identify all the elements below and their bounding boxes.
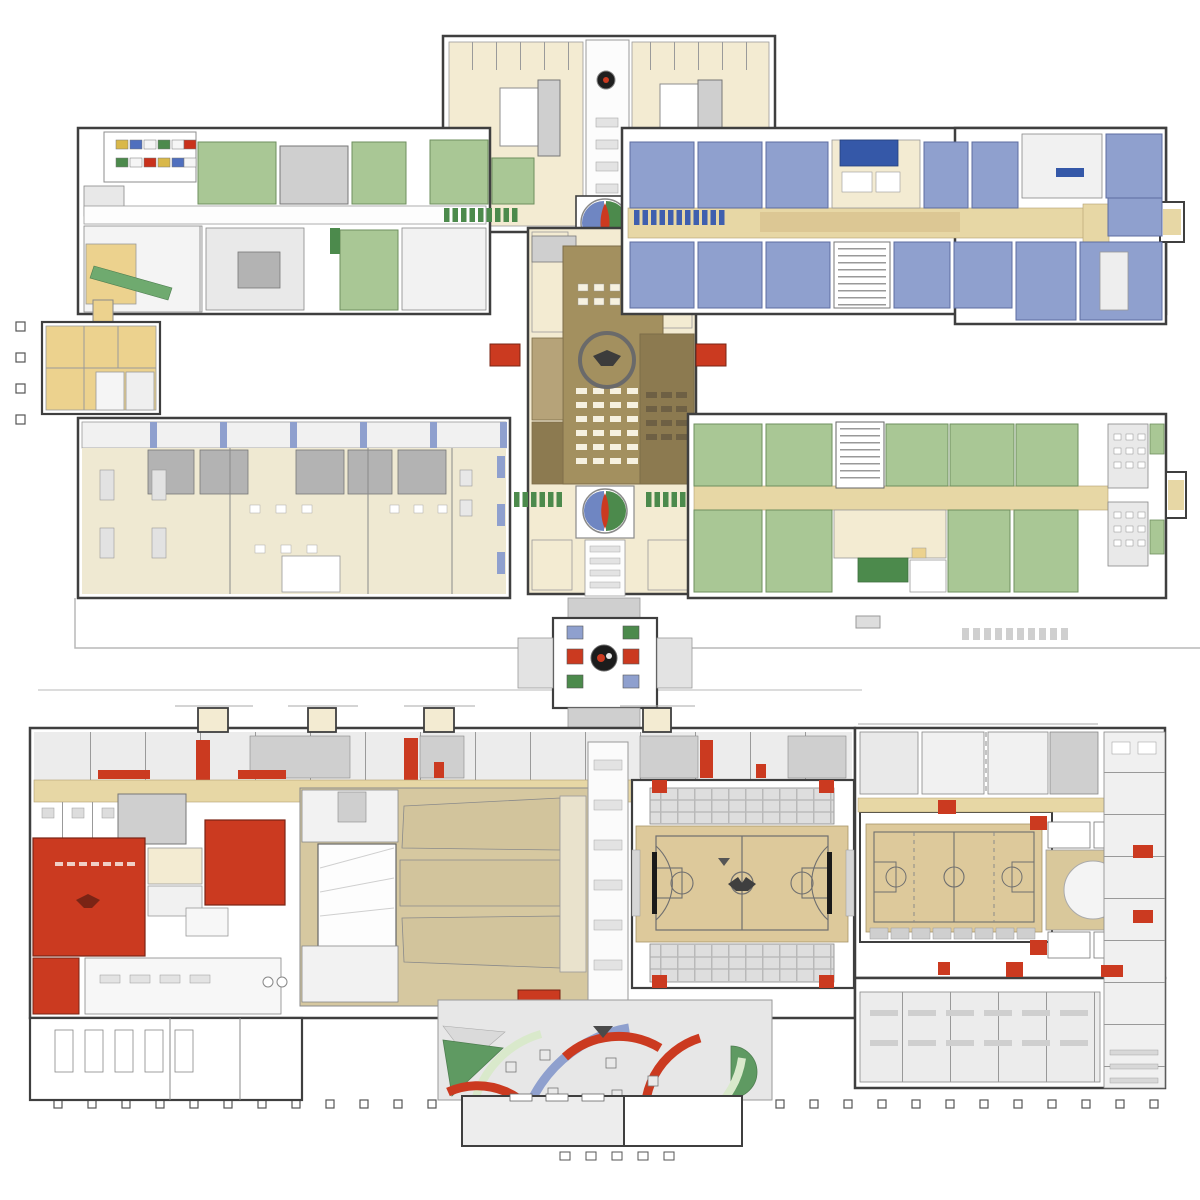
mr-lab-top xyxy=(1108,424,1148,488)
table-6 xyxy=(184,140,196,149)
site-equipment xyxy=(856,616,880,628)
ul-green-5 xyxy=(340,230,398,310)
entry-vestibule-2 xyxy=(308,708,336,732)
red-room-2 xyxy=(205,820,285,905)
ur-blue-t1 xyxy=(630,142,694,208)
ur-blue-t2 xyxy=(698,142,762,208)
mr-yellow-sm xyxy=(912,548,926,558)
entry-vestibule-3 xyxy=(424,708,454,732)
lb-red-5 xyxy=(434,762,444,778)
ur-corridor-band xyxy=(760,212,960,232)
connector-sq-red-e xyxy=(623,649,639,664)
table-4 xyxy=(158,140,170,149)
lb-red-3 xyxy=(196,740,210,780)
ur-util-white xyxy=(1100,252,1128,310)
court-baseline-w xyxy=(652,852,657,914)
gray-room-serving xyxy=(118,794,186,844)
mr-green-t4 xyxy=(950,424,1014,486)
shop-benches-2 xyxy=(255,545,317,553)
site-dots-bottom-left xyxy=(54,1100,436,1108)
table-9 xyxy=(144,158,156,167)
rb-red-7 xyxy=(1006,962,1023,977)
gym-pad-w xyxy=(632,850,640,916)
gym-red-se xyxy=(819,975,834,988)
media-shelves-2 xyxy=(646,406,687,412)
rb-red-4 xyxy=(1133,910,1153,923)
rb-benches xyxy=(1110,1050,1158,1083)
stage-support-gray xyxy=(338,792,366,822)
media-shelves-3 xyxy=(646,420,687,426)
mr-green-b2 xyxy=(766,510,832,592)
seating-rear-walk xyxy=(560,796,586,972)
mr-green-b1 xyxy=(694,510,762,592)
plaza-planter-1 xyxy=(506,1062,516,1072)
ur-blue-t3 xyxy=(766,142,828,208)
mr-green-t1 xyxy=(694,424,762,486)
rb-room-3 xyxy=(988,732,1048,794)
stair-medallion-dot xyxy=(603,77,609,83)
connector-sq-blue-nw xyxy=(567,626,583,639)
rb-red-2 xyxy=(1030,816,1047,830)
seating-c xyxy=(402,916,560,968)
mr-lab-top-r1 xyxy=(1114,434,1145,440)
site-dots-bottom-right xyxy=(776,1100,1158,1108)
connector-pad-n xyxy=(568,598,640,618)
media-stair-east xyxy=(696,344,726,366)
rb-corridor xyxy=(858,798,1108,812)
entry-vestibule-1 xyxy=(198,708,228,732)
mr-green-t5 xyxy=(1016,424,1078,486)
mr-green-t2 xyxy=(766,424,832,486)
table-2 xyxy=(130,140,142,149)
rb-red-6 xyxy=(938,962,950,975)
table-5 xyxy=(172,140,184,149)
shop-benches-3 xyxy=(390,505,447,513)
connector-sq-green-sw xyxy=(567,675,583,688)
annex-room-w2 xyxy=(126,372,154,410)
stage-side-rooms xyxy=(302,946,398,1002)
ur-endcap-darkblue xyxy=(1056,168,1084,177)
mr-green-e2 xyxy=(1150,520,1164,554)
plaza-vestibule-e xyxy=(624,1096,742,1146)
gym-red-ne xyxy=(819,780,834,793)
ul-lockers-green xyxy=(444,208,518,222)
kindergarten-room xyxy=(104,132,196,182)
ur-vestibule-east-floor xyxy=(1163,209,1181,235)
stage xyxy=(318,844,396,962)
shops-gray-4 xyxy=(348,450,392,494)
floor-plan-page xyxy=(0,0,1200,1200)
mr-green-e1 xyxy=(1150,424,1164,454)
rb-red-5 xyxy=(1030,940,1047,955)
connector-pad-s xyxy=(568,708,640,728)
lb-red-6 xyxy=(700,740,713,778)
mr-green-t3 xyxy=(886,424,948,486)
ur-blue-t6 xyxy=(1106,134,1162,198)
table-10 xyxy=(158,158,170,167)
rb-red-1 xyxy=(938,800,956,814)
connector-sq-green-ne xyxy=(623,626,639,639)
media-left-room2 xyxy=(532,422,563,484)
shops-white-room xyxy=(282,556,340,592)
shop-benches-1 xyxy=(250,505,312,513)
gym-pad-e xyxy=(846,850,854,916)
connector-pad-e xyxy=(657,638,692,688)
media-shelves-4 xyxy=(646,434,687,440)
shops-blue-edge xyxy=(497,456,505,574)
lb-gray-3 xyxy=(640,736,698,778)
shops-gray-3 xyxy=(296,450,344,494)
ur-core-cell2 xyxy=(876,172,900,192)
mr-util-cream xyxy=(834,510,946,558)
plaza-planter-2 xyxy=(540,1050,550,1060)
ur-blue-b6 xyxy=(1016,242,1076,320)
red-room-counter xyxy=(55,862,135,866)
media-left-room1 xyxy=(532,338,563,420)
mr-green-b3 xyxy=(948,510,1010,592)
mr-lab-bottom xyxy=(1108,502,1148,566)
seating-a xyxy=(402,798,560,850)
media-shelves-1 xyxy=(646,392,687,398)
ur-lockers-blue xyxy=(634,210,725,225)
school-campus-floor-plan xyxy=(0,0,1200,1200)
connector-medallion-white xyxy=(606,653,612,659)
locker-suite xyxy=(860,992,1100,1082)
mat-room-3 xyxy=(1048,932,1090,958)
rb-room-2 xyxy=(922,732,984,794)
serving-circle-1 xyxy=(263,977,273,987)
table-8 xyxy=(130,158,142,167)
rb-red-8 xyxy=(1101,965,1123,977)
lb-red-2 xyxy=(238,770,286,779)
table-1 xyxy=(116,140,128,149)
ur-endcap-white xyxy=(1022,134,1102,198)
ur-blue-b5 xyxy=(954,242,1012,308)
left-link xyxy=(93,300,113,324)
shops-gray-5 xyxy=(398,450,446,494)
mat-room-1 xyxy=(1048,822,1090,848)
ul-green-2 xyxy=(352,142,406,204)
north-room-2 xyxy=(538,80,560,156)
mr-lab-top-r2 xyxy=(1114,448,1145,454)
mr-lab-top-r3 xyxy=(1114,462,1145,468)
lb-red-1 xyxy=(98,770,150,779)
ul-greendark-1 xyxy=(330,228,340,254)
mr-corridor xyxy=(694,486,1108,510)
plaza-planter-4 xyxy=(606,1058,616,1068)
media-south-room-e xyxy=(648,540,692,590)
lb-red-7 xyxy=(756,764,766,778)
lb-red-4 xyxy=(404,738,418,780)
lb-cream-1 xyxy=(148,848,202,884)
plaza-doors xyxy=(510,1094,604,1101)
ur-blue-b1 xyxy=(630,242,694,308)
red-room-3 xyxy=(33,958,79,1014)
mr-lab-bot-r2 xyxy=(1114,526,1145,532)
shops-gray-2 xyxy=(200,450,248,494)
seating-b xyxy=(400,860,560,906)
plaza-vestibule xyxy=(462,1096,624,1146)
lb-gray-4 xyxy=(788,736,846,778)
connector-sq-blue-se xyxy=(623,675,639,688)
ur-blue-t5 xyxy=(972,142,1018,208)
mr-white-room xyxy=(910,560,946,592)
table-11 xyxy=(172,158,184,167)
gym-red-sw xyxy=(652,975,667,988)
ul-gray-1 xyxy=(280,146,348,204)
plaza-south-ticks xyxy=(560,1152,674,1160)
entry-vestibule-4 xyxy=(643,708,671,732)
ur-core-cell1 xyxy=(842,172,872,192)
rb-red-3 xyxy=(1133,845,1153,858)
media-stair-west xyxy=(490,344,520,366)
ul-green-4 xyxy=(492,158,534,204)
rb-room-1 xyxy=(860,732,918,794)
annex-room-w1 xyxy=(96,372,124,410)
plaza-planter-6 xyxy=(648,1076,658,1086)
mr-darkgreen-room xyxy=(858,558,908,582)
ur-science-lab xyxy=(840,140,898,166)
ur-blue-b4 xyxy=(894,242,950,308)
connector-pad-w xyxy=(518,638,553,688)
mr-green-b4 xyxy=(1014,510,1078,592)
gym-red-nw xyxy=(652,780,667,793)
rb-room-4 xyxy=(1050,732,1098,794)
table-12 xyxy=(184,158,196,167)
lb-room-2 xyxy=(186,908,228,936)
serving-circle-2 xyxy=(277,977,287,987)
mr-vestibule-e-floor xyxy=(1168,480,1184,510)
connector-sq-red-w xyxy=(567,649,583,664)
media-south-room-w xyxy=(532,540,572,590)
site-dash-strip xyxy=(962,628,1068,640)
ul-green-3 xyxy=(430,140,488,204)
ul-corridor xyxy=(84,206,486,224)
ur-blue-b3 xyxy=(766,242,830,308)
ur-blue-m1 xyxy=(1108,198,1162,236)
ul-room-d xyxy=(402,228,486,310)
site-dots-left-column xyxy=(16,322,25,424)
ur-blue-b2 xyxy=(698,242,762,308)
mr-lab-bot-r3 xyxy=(1114,540,1145,546)
court-baseline-e xyxy=(827,852,832,914)
ul-green-1 xyxy=(198,142,276,204)
table-3 xyxy=(144,140,156,149)
ul-gray-2 xyxy=(238,252,280,288)
connector-medallion-red xyxy=(597,654,605,662)
table-7 xyxy=(116,158,128,167)
ur-blue-t4 xyxy=(924,142,968,208)
mr-lab-bot-r1 xyxy=(1114,512,1145,518)
serving-area xyxy=(85,958,281,1014)
